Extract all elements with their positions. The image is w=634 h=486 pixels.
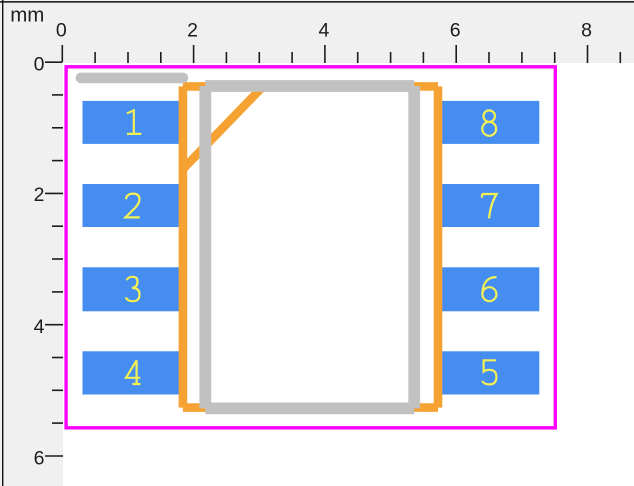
svg-text:4: 4 — [318, 20, 329, 42]
svg-text:0: 0 — [34, 53, 45, 75]
svg-text:6: 6 — [450, 20, 461, 42]
svg-text:4: 4 — [34, 316, 45, 338]
svg-text:0: 0 — [56, 20, 67, 42]
svg-text:8: 8 — [581, 20, 592, 42]
svg-text:mm: mm — [10, 3, 44, 26]
svg-text:2: 2 — [34, 184, 45, 206]
svg-text:6: 6 — [34, 447, 45, 469]
svg-text:2: 2 — [187, 20, 198, 42]
